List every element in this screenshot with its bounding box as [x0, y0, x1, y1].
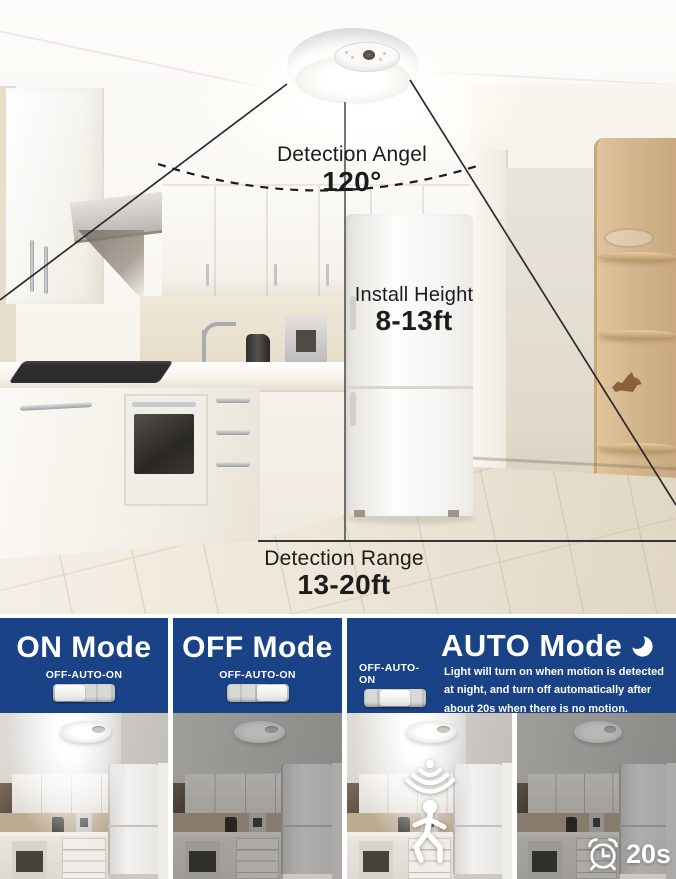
mini-ceiling-light: [234, 721, 285, 743]
timer-badge: 20s: [585, 836, 671, 872]
mini-ceiling-light: [574, 721, 622, 743]
faucet-stem: [202, 330, 206, 366]
oven-handle: [132, 402, 196, 407]
oven-window: [134, 414, 194, 474]
motion-sensor-module: [334, 42, 400, 72]
fridge-handle: [350, 392, 356, 426]
auto-mode-header: AUTO Mode Light will turn on when motion…: [347, 618, 676, 713]
fridge-foot: [354, 510, 365, 517]
detection-angle-label: Detection Angel: [252, 143, 452, 167]
mini-kettle: [566, 817, 577, 832]
mode-switch-on: [53, 684, 115, 702]
mini-oven: [12, 841, 47, 879]
motion-sensor-walking-person-icon: [399, 759, 461, 867]
switch-knob: [257, 685, 287, 701]
fridge-door-seam: [345, 386, 473, 389]
auto-mode-photo-timeout: 20s: [517, 713, 676, 879]
mini-coffee-machine: [249, 813, 266, 832]
shelf: [598, 252, 676, 261]
mini-upper-cabinets: [528, 774, 620, 813]
mini-right-wall: [332, 763, 342, 879]
off-mode-title: OFF Mode: [182, 631, 333, 665]
mini-right-wall: [158, 763, 168, 879]
off-mode-photo: [173, 713, 342, 879]
cabinet-handle: [30, 240, 34, 292]
corner-shelf-unit: [594, 138, 676, 480]
pir-sensor-dot: [363, 50, 375, 60]
faucet: [202, 322, 236, 356]
drawer-handle: [216, 398, 250, 403]
on-mode-title: ON Mode: [16, 631, 151, 665]
switch-knob: [380, 690, 410, 706]
mini-kitchen-scene: [173, 713, 342, 879]
glass-dish: [604, 228, 654, 248]
auto-mode-photo-motion: [347, 713, 512, 879]
mini-kettle: [225, 817, 237, 832]
fridge-foot: [448, 510, 459, 517]
coffee-machine-group: [296, 330, 316, 352]
on-mode-header: ON Mode OFF-AUTO-ON: [0, 618, 168, 713]
mini-upper-cabinets: [185, 774, 283, 813]
induction-hob: [9, 361, 174, 383]
mini-fridge: [281, 764, 332, 874]
auto-mode-title: AUTO Mode: [441, 628, 622, 664]
mini-drawer-stack: [236, 838, 280, 879]
kitchen-photo-main: Detection Angel 120° Install Height 8-13…: [0, 0, 676, 614]
install-height-label: Install Height: [348, 284, 480, 306]
install-height-value: 8-13ft: [348, 305, 480, 336]
upper-left-cabinet: [6, 88, 104, 304]
off-mode-switch-label: OFF-AUTO-ON: [219, 669, 296, 681]
mode-switch-off: [227, 684, 289, 702]
drawer-handle: [216, 462, 250, 467]
off-mode-header: OFF Mode OFF-AUTO-ON: [173, 618, 342, 713]
detection-angle-value: 120°: [252, 166, 452, 197]
mini-ceiling-light: [60, 721, 110, 743]
auto-mode-switch-label: OFF-AUTO-ON: [359, 662, 431, 686]
timer-text: 20s: [626, 839, 671, 870]
fridge: [345, 214, 473, 516]
mini-coffee-machine: [589, 813, 605, 832]
mini-oven: [528, 841, 561, 879]
alarm-clock-icon: [585, 836, 621, 872]
crescent-moon-icon: [629, 633, 656, 660]
mini-oven: [359, 841, 394, 879]
mini-ceiling-light: [406, 721, 456, 743]
auto-mode-description: Light will turn on when motion is detect…: [444, 663, 674, 718]
shelf: [598, 330, 676, 339]
product-infographic: Detection Angel 120° Install Height 8-13…: [0, 0, 676, 879]
detection-range-label: Detection Range: [260, 547, 428, 571]
shelf: [598, 443, 676, 452]
mini-right-wall: [502, 763, 512, 879]
switch-knob: [55, 685, 85, 701]
on-mode-switch-label: OFF-AUTO-ON: [46, 669, 123, 681]
on-mode-photo: [0, 713, 168, 879]
detection-range-value: 13-20ft: [260, 569, 428, 600]
cabinet-handle: [44, 246, 48, 294]
mini-oven: [185, 841, 220, 879]
mini-kitchen-scene: [0, 713, 168, 879]
drawer-handle: [216, 430, 250, 435]
mode-switch-auto: [364, 689, 426, 707]
